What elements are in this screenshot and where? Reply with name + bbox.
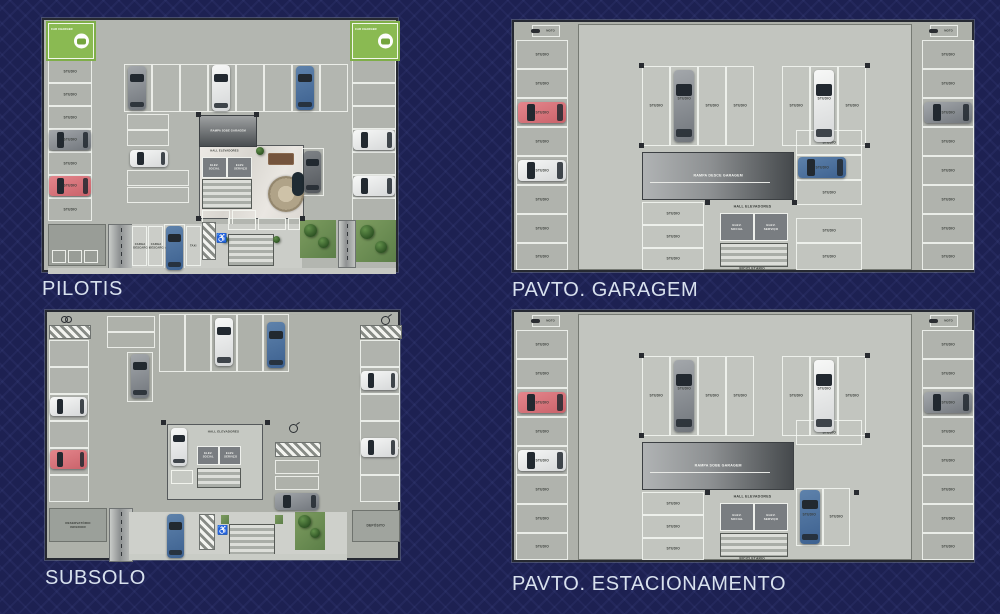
parking-spot: STUDIO [922, 475, 974, 504]
access-box [228, 218, 256, 230]
parking-spot: STUDIO [922, 330, 974, 359]
pillar [705, 200, 710, 205]
parking-spot: STUDIO [642, 492, 704, 515]
studio-label: STUDIO [63, 70, 76, 73]
parking-spot: STUDIO [922, 417, 974, 446]
pillar [639, 143, 644, 148]
studio-on-car: STUDIO [518, 450, 566, 471]
parking-spot: STUDIO [642, 356, 670, 436]
parking-spot: STUDIO [516, 533, 568, 560]
studio-on-car: STUDIO [49, 176, 91, 196]
car-blue [296, 66, 314, 110]
ramp-lane [650, 182, 770, 183]
access-box [288, 218, 300, 230]
parking-spot: STUDIO [48, 60, 92, 83]
moto-spot: MOTO [532, 315, 560, 327]
parking-spot: STUDIO [922, 504, 974, 533]
parking-spot: STUDIO [922, 446, 974, 475]
elevator-social: ELEV. SOCIAL [720, 213, 754, 241]
utility-room [84, 250, 98, 263]
pillar [639, 353, 644, 358]
sidewalk [48, 268, 396, 274]
studio-on-car: STUDIO [924, 392, 972, 413]
parking-spot: STUDIO [922, 69, 974, 98]
elevator-service: ELEV. SERVIÇO [754, 213, 788, 241]
pillar [300, 216, 305, 221]
parking-spot [185, 314, 211, 372]
pilotis-ramp [338, 220, 356, 268]
studio-on-car: STUDIO [796, 508, 823, 522]
studio-on-car: STUDIO [518, 160, 566, 181]
parking-spot: STUDIO [516, 185, 568, 214]
studio-on-car: STUDIO [670, 382, 698, 396]
parking-spot: STUDIO [516, 243, 568, 270]
parking-spot: STUDIO [516, 504, 568, 533]
parking-spot [180, 64, 208, 112]
pillar [705, 490, 710, 495]
parking-spot: STUDIO [698, 66, 726, 146]
pilotis-plan: CAR CHARGER CAR CHARGER STUDIO STUDIO ST… [42, 18, 398, 272]
access-box [258, 218, 286, 230]
parking-spot: STUDIO [726, 356, 754, 436]
hall-label: HALL ELEVADORES [200, 147, 248, 155]
pilotis-title: PILOTIS [42, 278, 123, 301]
parking-spot: STUDIO [698, 356, 726, 436]
studio-on-car: STUDIO [518, 392, 566, 413]
car-blue [167, 514, 184, 558]
plant [273, 236, 280, 243]
loading-spot: CARGA DESCARGA [132, 226, 147, 266]
sofa [292, 172, 304, 196]
hall-label: HALL ELEVADORES [193, 428, 253, 436]
parking-spot: STUDIO [516, 417, 568, 446]
estacionamento-plan: MOTO MOTO STUDIO STUDIO STUDIO STUDIO ST… [512, 310, 974, 562]
car-white [814, 70, 834, 142]
sidewalk [129, 554, 347, 560]
parking-spot [360, 394, 400, 421]
subsolo-title: SUBSOLO [45, 567, 146, 590]
studio-on-car: STUDIO [798, 157, 846, 178]
reception-desk [268, 153, 294, 165]
car-gray [128, 66, 146, 110]
car-charger-box: CAR CHARGER [48, 23, 94, 59]
parking-spot [49, 475, 89, 502]
parking-spot: STUDIO [642, 515, 704, 538]
parking-spot [49, 421, 89, 448]
car-charger-icon [74, 34, 89, 49]
elevator-service: ELEV. SERVIÇO [219, 446, 241, 465]
moto-icon [531, 29, 540, 33]
car-white [171, 428, 187, 466]
taxi-spot: TAXI [186, 226, 201, 266]
ramp-label: RAMPA SOBE GARAGEM [694, 464, 741, 468]
studio-on-car: STUDIO [810, 92, 838, 106]
parking-spot [159, 314, 185, 372]
slide-background: CAR CHARGER CAR CHARGER STUDIO STUDIO ST… [0, 0, 1000, 614]
parking-spot [275, 476, 319, 490]
parking-spot [107, 332, 155, 348]
pillar [865, 433, 870, 438]
parking-spot [152, 64, 180, 112]
parking-spot: STUDIO [516, 214, 568, 243]
tree [318, 237, 329, 248]
parking-spot [49, 367, 89, 394]
garagem-title: PAVTO. GARAGEM [512, 279, 698, 302]
car-white [361, 371, 398, 390]
hatched-area [360, 325, 402, 339]
utility-room [171, 470, 193, 484]
parking-spot: STUDIO [922, 156, 974, 185]
tree [298, 515, 311, 528]
car-white [353, 130, 395, 150]
parking-spot: STUDIO [642, 538, 704, 560]
bike-rack-label: BICICLETÁRIO [710, 265, 794, 272]
parking-spot [360, 475, 400, 502]
tree [304, 224, 317, 237]
car-white [130, 150, 168, 167]
ramp-label: RAMPA SOBE GARAGEM [210, 130, 245, 133]
car-charger-icon [378, 34, 393, 49]
pillar [254, 112, 259, 117]
parking-spot [275, 460, 319, 474]
hatched-area [199, 514, 215, 550]
car-gray [674, 360, 694, 432]
accessibility-icon: ♿ [217, 526, 228, 535]
hall-label: HALL ELEVADORES [710, 202, 794, 211]
car-white [353, 176, 395, 196]
parking-spot: STUDIO [922, 127, 974, 156]
studio-label: STUDIO [63, 93, 76, 96]
ramp-label: RAMPA DESCE GARAGEM [693, 174, 742, 178]
elevator-service: ELEV. SERVIÇO [227, 157, 252, 178]
pillar [161, 420, 166, 425]
pillar [196, 112, 201, 117]
moto-icon [929, 29, 938, 33]
parking-spot: STUDIO [642, 202, 704, 225]
subsolo-plan: RESERVATÓRIO INFERIOR HALL ELEVADORES EL… [45, 310, 400, 560]
parking-spot [127, 187, 189, 203]
parking-spot: STUDIO [516, 69, 568, 98]
moto-spot: MOTO [532, 25, 560, 37]
parking-spot: STUDIO [48, 83, 92, 106]
hatched-area [49, 325, 91, 339]
car-gray [674, 70, 694, 142]
parking-spot: STUDIO [642, 66, 670, 146]
car-blue [267, 322, 285, 368]
parking-spot: STUDIO [922, 359, 974, 388]
fixture-icon [289, 424, 298, 433]
car-white [814, 360, 834, 432]
pillar [196, 216, 201, 221]
parking-spot: STUDIO [922, 243, 974, 270]
studio-on-car: STUDIO [810, 382, 838, 396]
parking-spot: STUDIO [922, 533, 974, 560]
pillar [854, 490, 859, 495]
parking-spot: STUDIO [642, 248, 704, 270]
utility-room [68, 250, 82, 263]
studio-on-car: STUDIO [924, 102, 972, 123]
parking-spot: STUDIO [516, 127, 568, 156]
pillar [639, 63, 644, 68]
planter [221, 515, 229, 524]
parking-spot [237, 314, 263, 372]
parking-spot [320, 64, 348, 112]
parking-spot [236, 64, 264, 112]
studio-on-car: STUDIO [518, 102, 566, 123]
pillar [865, 143, 870, 148]
parking-spot [127, 130, 169, 146]
garage-ramp: RAMPA SOBE GARAGEM [642, 442, 794, 490]
stairs [720, 533, 788, 557]
studio-label: STUDIO [63, 116, 76, 119]
parking-spot: STUDIO [48, 106, 92, 129]
parking-spot [107, 316, 155, 332]
entrance-steps [228, 234, 274, 266]
studio-on-car: STUDIO [670, 92, 698, 106]
elevator-social: ELEV. SOCIAL [202, 157, 227, 178]
garage-ramp: RAMPA SOBE GARAGEM [199, 115, 257, 147]
garage-ramp: RAMPA DESCE GARAGEM [642, 152, 794, 200]
parking-spot [49, 340, 89, 367]
planter [275, 515, 283, 524]
ramp-lane [650, 472, 770, 473]
tree [360, 225, 374, 239]
tree [310, 528, 320, 538]
bike-rack-label: BICICLETÁRIO [710, 555, 794, 562]
car-charger-label: CAR CHARGER [51, 28, 73, 31]
hatched-area [275, 442, 321, 457]
parking-spot: STUDIO [516, 330, 568, 359]
parking-spot: STUDIO [823, 488, 850, 546]
parking-spot [360, 340, 400, 367]
moto-icon [929, 319, 938, 323]
pillar [865, 353, 870, 358]
parking-spot [127, 170, 189, 186]
fixture-icon [381, 316, 390, 325]
parking-spot: STUDIO [516, 40, 568, 69]
car-gray [131, 354, 149, 398]
pillar [265, 420, 270, 425]
parking-spot [264, 64, 292, 112]
parking-spot: STUDIO [48, 198, 92, 221]
car-charger-box: CAR CHARGER [352, 23, 398, 59]
tree [375, 241, 387, 253]
car-red [50, 450, 87, 469]
parking-spot [127, 114, 169, 130]
loading-spot: CARGA DESCARGA [148, 226, 163, 266]
car-blue [166, 226, 183, 270]
elevator-service: ELEV. SERVIÇO [754, 503, 788, 531]
parking-spot: STUDIO [796, 180, 862, 205]
utility-room [52, 250, 66, 263]
moto-spot: MOTO [930, 315, 958, 327]
parking-spot [352, 83, 396, 106]
studio-label: STUDIO [63, 208, 76, 211]
stairs [202, 179, 252, 209]
hall-label: HALL ELEVADORES [710, 492, 794, 501]
parking-spot: STUDIO [516, 475, 568, 504]
car-white [361, 438, 398, 457]
parking-spot: STUDIO [726, 66, 754, 146]
parking-spot [352, 60, 396, 83]
parking-spot: STUDIO [642, 225, 704, 248]
stairs [720, 243, 788, 267]
storage-label: DEPÓSITO [352, 510, 400, 542]
elevator-social: ELEV. SOCIAL [720, 503, 754, 531]
parking-spot: STUDIO [48, 152, 92, 175]
car-white [212, 65, 230, 111]
pillar [792, 200, 797, 205]
moto-icon [531, 319, 540, 323]
car-gray [304, 151, 321, 193]
parking-spot: STUDIO [922, 40, 974, 69]
studio-label: STUDIO [63, 162, 76, 165]
parking-spot: STUDIO [922, 185, 974, 214]
car-white [50, 397, 87, 416]
moto-spot: MOTO [930, 25, 958, 37]
studio-on-car: STUDIO [49, 130, 91, 150]
car-gray [275, 493, 319, 510]
parking-spot: STUDIO [796, 218, 862, 243]
parking-spot: STUDIO [516, 359, 568, 388]
parking-spot [352, 152, 396, 175]
car-charger-label: CAR CHARGER [355, 28, 377, 31]
car-white [215, 318, 233, 366]
entrance-steps [229, 524, 275, 556]
parking-spot: STUDIO [796, 243, 862, 270]
hatched-area [202, 222, 216, 260]
garagem-plan: MOTO MOTO STUDIO STUDIO STUDIO STUDIO ST… [512, 20, 974, 272]
pillar [639, 433, 644, 438]
parking-spot [352, 106, 396, 129]
plant [256, 147, 264, 155]
reservoir-label: RESERVATÓRIO INFERIOR [49, 508, 107, 542]
stairs [197, 468, 241, 488]
parking-spot [352, 198, 396, 221]
bike-icon [61, 316, 72, 323]
basement-ramp [108, 224, 134, 272]
elevator-social: ELEV. SOCIAL [197, 446, 219, 465]
accessibility-icon: ♿ [216, 234, 227, 243]
estacionamento-title: PAVTO. ESTACIONAMENTO [512, 573, 786, 596]
parking-spot: STUDIO [922, 214, 974, 243]
pillar [865, 63, 870, 68]
